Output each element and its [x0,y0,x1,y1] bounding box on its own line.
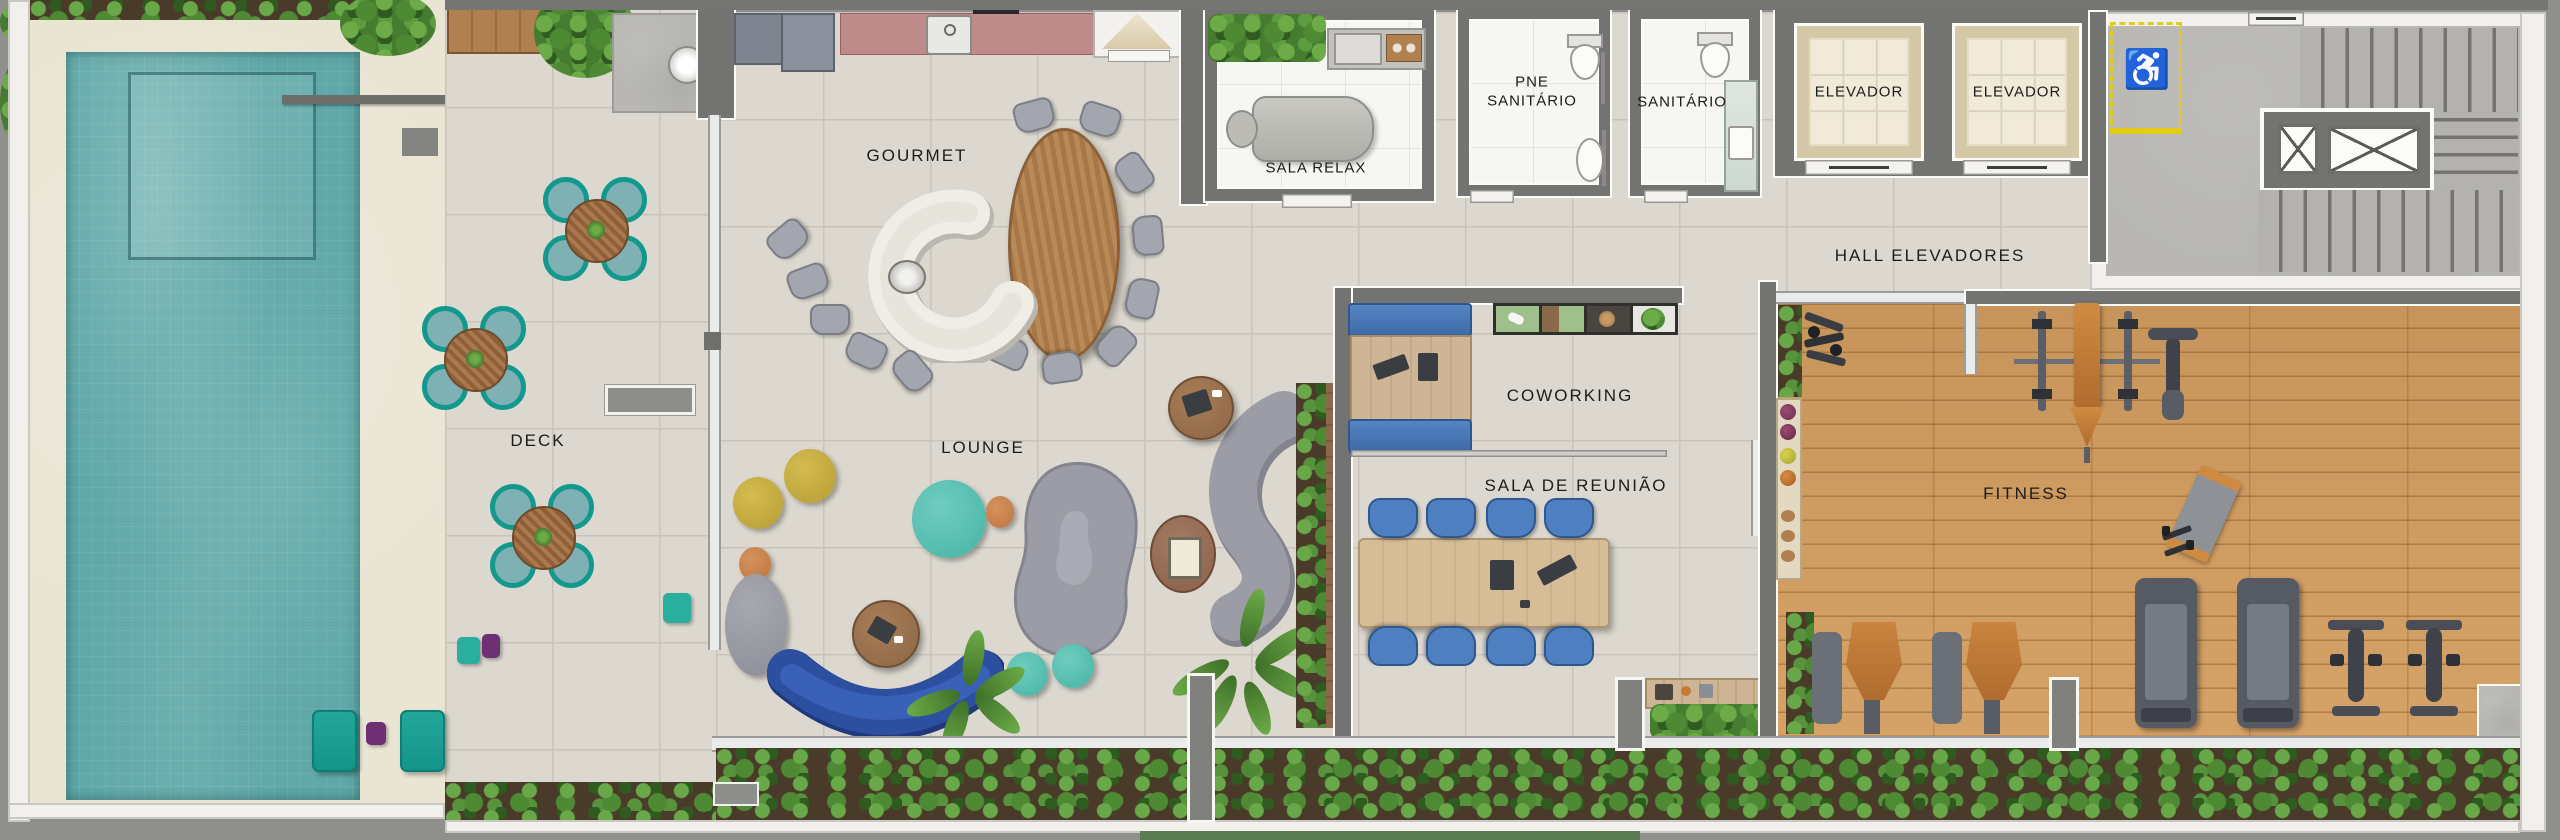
door-pne [1470,190,1514,203]
pouf-cube-teal-2 [457,637,480,664]
sun-lounger-2 [400,710,445,772]
relax-plants [1208,14,1326,62]
dining-chair [1131,214,1165,257]
fitness-vine-bottom [1786,612,1814,734]
fitness-left-wall [1760,282,1776,738]
stair-top-door [2248,12,2304,26]
stairs-upper-flight [2300,28,2518,112]
coworking-top-wall [1335,288,1682,303]
fitness-vine-top [1778,305,1802,397]
coworking-label: COWORKING [1507,386,1634,406]
glass-door-handle [704,332,721,350]
shelf-cell-herbs [1542,306,1585,332]
kitchen-cabinet-2 [781,13,835,72]
deck-table-1 [543,177,647,281]
massage-bed [1252,96,1374,162]
room-divider [1351,450,1667,457]
dumbbells-pair [2162,526,2196,562]
pne-grab-bar [1601,52,1605,104]
shelf-cell-plant [1633,306,1676,332]
meeting-chair [1544,498,1594,538]
lounge-table-2 [1168,376,1234,440]
meeting-chair [1486,626,1536,666]
pouf-cube-purple [482,634,500,658]
sofa-organic [1006,458,1142,662]
elevator-door-1 [1805,160,1913,175]
leg-press-1 [1812,622,1920,734]
stairs-lower-flight [2258,190,2518,272]
deck-gourmet-glass [708,115,721,650]
pne-sanitario-label: PNE SANITÁRIO [1487,73,1577,111]
meeting-chair [1426,626,1476,666]
meeting-chair [1486,498,1536,538]
deck-table-2 [422,306,526,410]
sala-reuniao-label: SALA DE REUNIÃO [1484,476,1667,496]
hedge-pool-top [30,0,366,20]
accessible-zone: ♿ [2110,22,2182,134]
massage-pillow [1226,110,1258,148]
sun-lounger-1 [312,710,357,772]
outer-wall-top [445,0,2548,10]
kitchen-faucet [944,24,956,36]
door-sanitario [1644,190,1688,203]
deck-privacy-wall [360,156,448,168]
column-3 [2052,680,2076,748]
san-basin [1728,126,1754,160]
outer-wall-right [2520,12,2546,832]
counter-stool [810,304,850,335]
meeting-chair [1368,626,1418,666]
coworking-bench-bottom [1348,419,1472,453]
shelf-cell-supplies [1496,306,1539,332]
pne-sink [1576,138,1604,182]
grass-strip [1140,831,1640,840]
row-machine [2148,328,2198,428]
pouf-mustard-2 [784,449,836,503]
hall-stair-wall [2090,12,2106,262]
coworking-desk [1350,335,1472,421]
shelf-cell-coffee-machine [1587,306,1630,332]
lounge-label: LOUNGE [941,438,1025,458]
hedge-bottom [716,748,2520,820]
pne-sink-bar [1602,130,1606,186]
medicine-ball-shelf [1776,398,1802,580]
meeting-chair [1426,498,1476,538]
hedge-deck-bottom [445,782,716,822]
meeting-table [1358,538,1610,628]
pouf-mustard-1 [733,477,783,529]
treadmill-1 [2135,578,2197,728]
hall-elevadores-label: HALL ELEVADORES [1835,246,2026,266]
relax-tray [1386,34,1422,62]
shaft-void-large [2328,126,2420,174]
stairs-side-flight [2434,112,2518,188]
coworking-left-wall [1335,288,1351,738]
outer-wall-left [8,0,30,822]
counter-ice-bucket [888,260,926,294]
deck-bench [605,385,695,415]
shaft-void-small [2278,124,2318,174]
deck-table-3 [490,484,594,588]
bench-hedge [713,782,759,806]
coworking-shelf [1493,303,1678,335]
deck-privacy-wall-2 [402,128,438,156]
gourmet-label: GOURMET [867,146,968,166]
column-1 [1190,676,1212,820]
relax-sink [1334,33,1382,65]
treadmill-2 [2237,578,2299,728]
kitchen-cabinet-1 [734,13,783,65]
elevator-door-2 [1963,160,2071,175]
floor-plan: ♿ DECK GOURMET LOUNGE SALA RELAX PNE SAN… [0,0,2560,840]
meeting-chair [1544,626,1594,666]
grill-burners [1108,50,1170,62]
deck-label: DECK [510,431,565,451]
sanitario-label: SANITÁRIO [1637,94,1727,111]
fitness-corner-slab [2477,684,2520,737]
exercise-bike-2 [2406,620,2462,716]
pantry-shrubs [1650,704,1766,740]
exercise-bike-1 [2328,620,2384,716]
fitness-glass-door [1964,304,1977,374]
coworking-bench-top [1348,303,1472,337]
plant-lounge-1 [945,655,1025,740]
wheelchair-icon: ♿ [2123,51,2170,89]
lounger-side-table [366,722,386,745]
pouf-teal-large [912,480,986,558]
gourmet-corner-wall [698,0,734,118]
elevador-2-label: ELEVADOR [1973,84,2062,101]
leg-press-2 [1932,622,2040,734]
sala-relax-label: SALA RELAX [1266,160,1367,177]
column-2 [1618,680,1642,748]
fitness-label: FITNESS [1983,484,2069,504]
door-sala-relax [1282,194,1352,208]
pouf-teal-2 [1052,644,1094,688]
fitness-glass-front [1776,291,1966,304]
planter-vine [1296,383,1326,728]
barbell-station [2032,303,2142,463]
outer-wall-pool-bottom [8,803,445,819]
elevador-1-label: ELEVADOR [1815,84,1904,101]
pool-handrail [282,95,448,104]
pouf-cube-teal-1 [663,593,691,623]
gourmet-right-wall [1181,8,1206,204]
dumbbell-rack [1804,314,1846,368]
meeting-chair [1368,498,1418,538]
